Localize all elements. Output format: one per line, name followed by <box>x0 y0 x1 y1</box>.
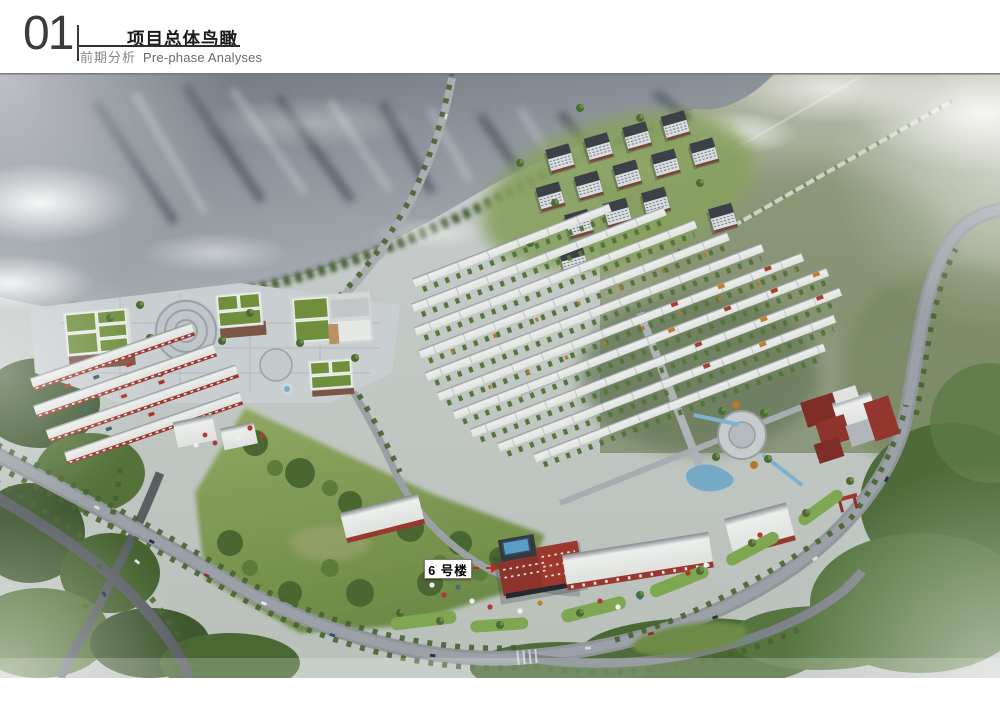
document-page: 01 项目总体鸟瞰 前期分析Pre-phase Analyses <box>0 0 1000 707</box>
label-arrow-icon <box>491 563 499 573</box>
campus-building-green-roof-3 <box>308 358 354 397</box>
subtitle-cn: 前期分析 <box>80 50 136 65</box>
label-arrow-line <box>473 567 492 569</box>
building-6-label: 6 号楼 <box>424 559 472 579</box>
campus-building-green-roof-2 <box>215 291 267 339</box>
page-subtitle: 前期分析Pre-phase Analyses <box>80 47 250 66</box>
subtitle-en: Pre-phase Analyses <box>143 50 262 65</box>
aerial-render-image: 6 号楼 <box>0 73 1000 678</box>
aerial-scene <box>0 73 1000 678</box>
bottom-fade <box>0 658 1000 678</box>
campus-building-main <box>290 291 373 346</box>
page-header: 01 项目总体鸟瞰 前期分析Pre-phase Analyses <box>0 0 1000 73</box>
section-number: 01 <box>23 10 72 58</box>
image-top-edge <box>0 73 1000 75</box>
